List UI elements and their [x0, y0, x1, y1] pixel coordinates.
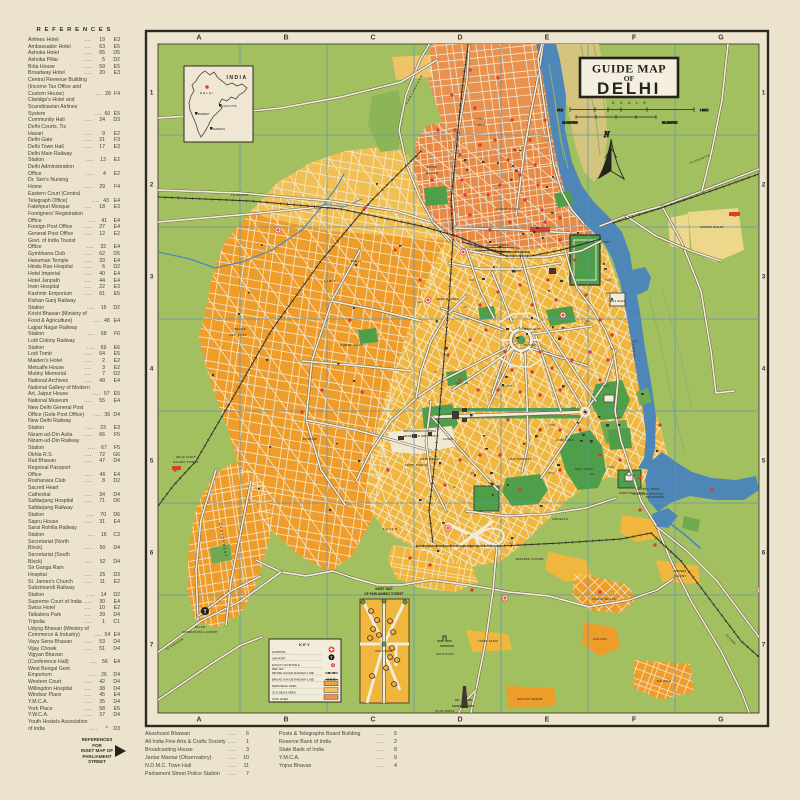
svg-text:INSET MAP: INSET MAP — [375, 587, 393, 591]
svg-text:ROOP: ROOP — [427, 165, 437, 169]
svg-text:PAHAR GANJ: PAHAR GANJ — [487, 243, 508, 247]
svg-text:LAJPAT NAGAR: LAJPAT NAGAR — [592, 597, 616, 601]
svg-text:B: B — [283, 35, 288, 42]
svg-text:AIR PORT: AIR PORT — [272, 657, 286, 661]
svg-text:GOLF LINKS: GOLF LINKS — [575, 468, 593, 471]
svg-text:DELHI: DELHI — [200, 91, 214, 95]
svg-text:FORT: FORT — [602, 240, 611, 244]
svg-text:OLD DELHI AREA: OLD DELHI AREA — [272, 691, 296, 695]
svg-text:SOUTH AVENUE: SOUTH AVENUE — [405, 464, 427, 467]
svg-text:CIVIL: CIVIL — [475, 117, 484, 121]
svg-text:MADRAS: MADRAS — [213, 127, 225, 131]
svg-text:NAGAR: NAGAR — [426, 171, 439, 175]
svg-text:KEY: KEY — [299, 642, 311, 647]
svg-text:G: G — [718, 35, 724, 42]
svg-text:D: D — [457, 35, 462, 42]
svg-text:PLACE: PLACE — [524, 343, 536, 347]
svg-text:C: C — [370, 35, 375, 42]
svg-text:3: 3 — [762, 274, 766, 281]
svg-text:BOMBAY: BOMBAY — [198, 112, 210, 116]
svg-text:F: F — [632, 717, 637, 724]
svg-text:DELHI: DELHI — [597, 79, 661, 98]
svg-text:TO ROHTAK: TO ROHTAK — [231, 193, 249, 197]
svg-text:NEW DELHI AREA: NEW DELHI AREA — [272, 684, 297, 688]
svg-text:4: 4 — [150, 366, 154, 373]
svg-text:E: E — [545, 717, 550, 724]
svg-text:RAILWAY STATION: RAILWAY STATION — [173, 461, 198, 464]
svg-text:C: C — [370, 717, 375, 724]
svg-text:G: G — [718, 717, 724, 724]
svg-text:6: 6 — [762, 550, 766, 557]
svg-text:LODI GARDENS: LODI GARDENS — [508, 457, 532, 461]
svg-text:5: 5 — [150, 458, 154, 465]
svg-text:HUMF LINES: HUMF LINES — [556, 439, 574, 442]
svg-text:QUTB MINAR: QUTB MINAR — [435, 709, 455, 713]
svg-text:DELHI CANTT: DELHI CANTT — [176, 456, 195, 459]
svg-text:PATEL CHOWK: PATEL CHOWK — [376, 650, 393, 653]
svg-text:FRIENDS: FRIENDS — [673, 570, 686, 573]
svg-text:RESEARCH INSTITUTE: RESEARCH INSTITUTE — [404, 435, 436, 438]
svg-text:KILOMETRES: KILOMETRES — [562, 122, 578, 125]
svg-text:CALCUTTA: CALCUTTA — [222, 104, 237, 108]
svg-text:LATRIN: LATRIN — [443, 438, 453, 441]
svg-text:4: 4 — [762, 366, 766, 373]
svg-text:T E H A R: T E H A R — [383, 527, 397, 531]
svg-text:METRE GAUGE RAILWAY LINE: METRE GAUGE RAILWAY LINE — [272, 671, 314, 675]
svg-text:INDIA: INDIA — [226, 75, 247, 81]
svg-text:DESH BANDHU: DESH BANDHU — [437, 297, 459, 301]
svg-text:KILOMETRES: KILOMETRES — [662, 122, 678, 125]
svg-text:7: 7 — [150, 642, 154, 649]
svg-text:YUSUF SARAI: YUSUF SARAI — [478, 640, 498, 643]
svg-text:S C A L E: S C A L E — [612, 100, 649, 105]
svg-text:INDIAN AGRICULTURAL: INDIAN AGRICULTURAL — [403, 430, 437, 433]
svg-text:PALAM: PALAM — [195, 626, 205, 629]
svg-text:KAMLA: KAMLA — [324, 279, 336, 283]
svg-text:2: 2 — [762, 182, 766, 189]
svg-text:B: B — [283, 717, 288, 724]
svg-text:JOR BAGH: JOR BAGH — [552, 517, 568, 521]
svg-text:HAUZ KHAS: HAUZ KHAS — [436, 652, 454, 656]
svg-text:A: A — [196, 717, 201, 724]
svg-text:E: E — [545, 35, 550, 42]
svg-text:KAILASH: KAILASH — [593, 637, 607, 641]
svg-text:COLONY: COLONY — [674, 575, 687, 578]
svg-text:OF PARLIAMENT STREET: OF PARLIAMENT STREET — [364, 592, 403, 596]
svg-text:HOSPITAL: HOSPITAL — [272, 650, 286, 654]
svg-text:NIZAMUDDIN: NIZAMUDDIN — [646, 496, 664, 499]
svg-text:RESEARCH INSTITUTE: RESEARCH INSTITUTE — [633, 493, 664, 496]
svg-text:SADAR BAZAR: SADAR BAZAR — [496, 207, 520, 211]
svg-text:CENTRAL ROAD: CENTRAL ROAD — [637, 488, 660, 491]
svg-text:1: 1 — [150, 90, 154, 97]
svg-text:1 MILE: 1 MILE — [700, 108, 708, 112]
svg-text:LINES: LINES — [475, 123, 485, 127]
svg-text:N: N — [603, 130, 610, 139]
svg-text:6: 6 — [150, 550, 154, 557]
svg-text:A: A — [196, 35, 201, 42]
svg-text:SARAI: SARAI — [351, 259, 361, 263]
svg-text:KALKAJI: KALKAJI — [657, 679, 671, 683]
svg-text:RAJOURI: RAJOURI — [303, 437, 318, 441]
svg-text:NEW DELHI: NEW DELHI — [420, 457, 440, 461]
svg-text:DEFENCE COLONY: DEFENCE COLONY — [516, 557, 544, 561]
svg-text:7: 7 — [762, 642, 766, 649]
svg-text:2: 2 — [150, 182, 154, 189]
svg-text:INTERNATIONAL AIRPORT: INTERNATIONAL AIRPORT — [182, 631, 218, 634]
svg-text:EXT. EAST: EXT. EAST — [230, 333, 247, 337]
svg-text:GANDHI NAGAR: GANDHI NAGAR — [700, 226, 723, 229]
svg-text:1: 1 — [762, 90, 766, 97]
svg-text:3: 3 — [150, 274, 154, 281]
svg-text:F: F — [632, 35, 637, 42]
svg-text:D: D — [457, 717, 462, 724]
svg-text:TEHAR: TEHAR — [234, 327, 246, 331]
svg-text:KAROL BAGH: KAROL BAGH — [340, 343, 363, 347]
svg-text:RAJ GHAT: RAJ GHAT — [611, 300, 626, 303]
svg-text:MALVIYA NAGAR: MALVIYA NAGAR — [517, 697, 542, 701]
svg-text:CIVIL LINES: CIVIL LINES — [272, 697, 288, 701]
svg-text:5: 5 — [762, 458, 766, 465]
svg-text:BROAD GAUGE RAILWAY LINE: BROAD GAUGE RAILWAY LINE — [272, 677, 314, 681]
svg-text:CONNAUGHT: CONNAUGHT — [519, 327, 541, 331]
svg-text:MILE: MILE — [557, 108, 563, 112]
